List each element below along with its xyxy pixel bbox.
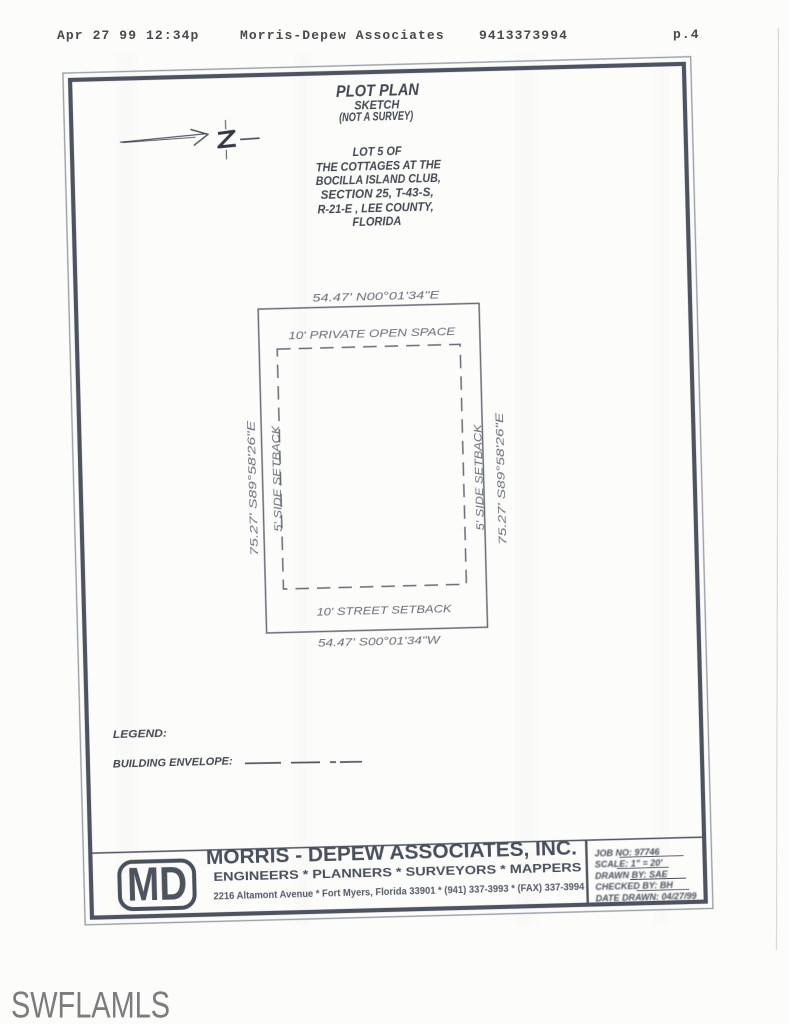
svg-text:p.4: p.4 [673,27,700,42]
svg-text:5' SIDE SETBACK: 5' SIDE SETBACK [472,423,487,530]
svg-text:FLORIDA: FLORIDA [352,214,401,229]
svg-text:Morris-Depew Associates: Morris-Depew Associates [240,28,445,43]
svg-text:75.27' S89°58'26"E: 75.27' S89°58'26"E [494,412,509,545]
svg-text:54.47' N00°01'34"E: 54.47' N00°01'34"E [312,289,440,304]
svg-text:10' PRIVATE OPEN SPACE: 10' PRIVATE OPEN SPACE [288,326,456,342]
svg-text:MD: MD [126,856,187,911]
svg-text:Apr 27 99 12:34p: Apr 27 99 12:34p [57,28,199,43]
svg-text:9413373994: 9413373994 [479,28,568,43]
svg-text:(NOT A SURVEY): (NOT A SURVEY) [339,108,413,124]
svg-text:SWFLAMLS: SWFLAMLS [11,985,170,1024]
svg-text:75.27' S89°58'26"E: 75.27' S89°58'26"E [246,420,262,556]
svg-text:54.47' S00°01'34"W: 54.47' S00°01'34"W [318,634,442,649]
svg-text:BUILDING ENVELOPE:: BUILDING ENVELOPE: [113,755,233,770]
svg-text:10' STREET SETBACK: 10' STREET SETBACK [316,603,452,619]
svg-text:5' SIDE SETBACK: 5' SIDE SETBACK [270,425,285,532]
svg-text:LEGEND:: LEGEND: [113,728,168,741]
svg-text:LOT 5 OF: LOT 5 OF [352,144,402,159]
